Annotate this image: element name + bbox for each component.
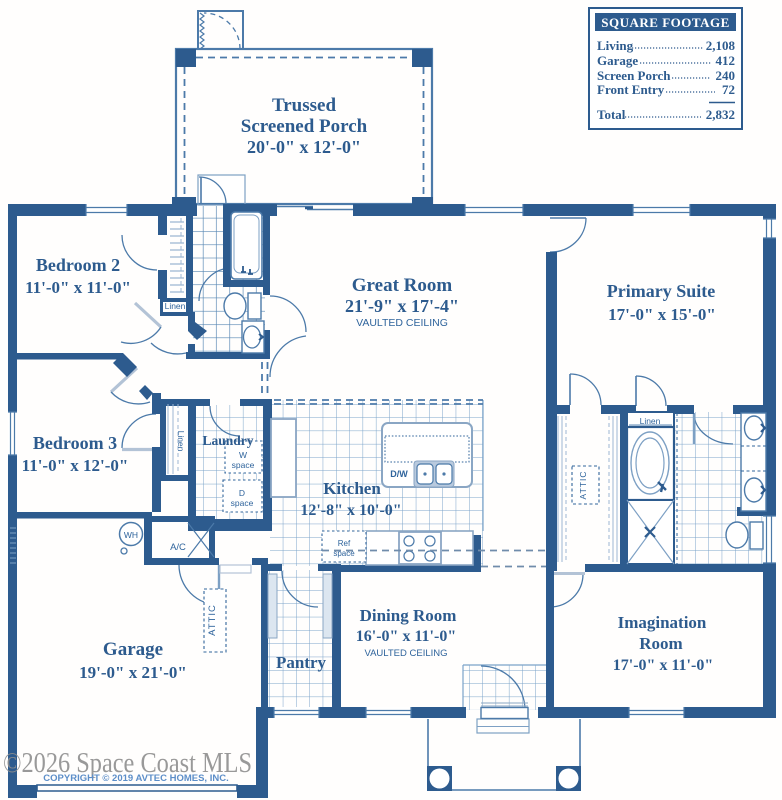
- svg-text:Ref: Ref: [338, 539, 351, 548]
- svg-text:Room: Room: [639, 634, 682, 653]
- svg-text:21'-9" x 17'-4": 21'-9" x 17'-4": [345, 296, 459, 316]
- svg-text:Garage: Garage: [597, 53, 638, 68]
- svg-text:72: 72: [722, 82, 735, 97]
- svg-text:11'-0" x 11'-0": 11'-0" x 11'-0": [25, 278, 131, 297]
- svg-text:ATTIC: ATTIC: [578, 471, 588, 500]
- svg-text:Bedroom 2: Bedroom 2: [36, 255, 120, 275]
- svg-text:space: space: [231, 498, 254, 508]
- svg-text:17'-0" x 15'-0": 17'-0" x 15'-0": [608, 305, 716, 324]
- svg-text:Living: Living: [597, 38, 634, 53]
- svg-text:19'-0" x 21'-0": 19'-0" x 21'-0": [79, 663, 187, 682]
- svg-text:412: 412: [716, 53, 736, 68]
- svg-text:COPYRIGHT © 2019 AVTEC HOMES,: COPYRIGHT © 2019 AVTEC HOMES, INC.: [43, 773, 228, 784]
- svg-text:Screen Porch: Screen Porch: [597, 68, 671, 83]
- svg-text:Dining Room: Dining Room: [360, 606, 457, 625]
- svg-text:20'-0" x 12'-0": 20'-0" x 12'-0": [247, 137, 361, 157]
- svg-text:Great Room: Great Room: [352, 275, 453, 296]
- svg-text:A/C: A/C: [170, 542, 186, 553]
- svg-text:Primary Suite: Primary Suite: [607, 281, 715, 301]
- svg-text:Kitchen: Kitchen: [323, 479, 381, 498]
- svg-text:2,832: 2,832: [706, 107, 735, 122]
- svg-text:Laundry: Laundry: [202, 433, 253, 448]
- svg-text:Trussed: Trussed: [272, 95, 336, 116]
- svg-text:Linen: Linen: [165, 301, 186, 311]
- svg-text:Total: Total: [597, 107, 626, 122]
- svg-text:space: space: [333, 549, 355, 558]
- svg-text:Bedroom 3: Bedroom 3: [33, 433, 117, 453]
- svg-text:W: W: [239, 450, 247, 460]
- svg-text:Pantry: Pantry: [276, 653, 327, 672]
- svg-text:WH: WH: [124, 530, 138, 540]
- svg-text:11'-0" x 12'-0": 11'-0" x 12'-0": [22, 456, 129, 475]
- svg-text:Linen: Linen: [640, 416, 661, 426]
- svg-text:VAULTED CEILING: VAULTED CEILING: [364, 648, 447, 659]
- svg-text:D/W: D/W: [390, 469, 408, 479]
- svg-text:Imagination: Imagination: [618, 613, 707, 632]
- svg-text:17'-0" x 11'-0": 17'-0" x 11'-0": [613, 657, 713, 674]
- svg-text:ATTIC: ATTIC: [207, 604, 218, 636]
- svg-text:240: 240: [716, 68, 736, 83]
- svg-text:Front Entry: Front Entry: [597, 82, 665, 97]
- svg-text:VAULTED CEILING: VAULTED CEILING: [356, 317, 448, 329]
- svg-text:Linen: Linen: [176, 431, 186, 452]
- svg-text:2,108: 2,108: [706, 38, 736, 53]
- svg-text:16'-0" x 11'-0": 16'-0" x 11'-0": [356, 628, 456, 645]
- svg-text:Garage: Garage: [103, 639, 163, 660]
- svg-text:space: space: [232, 460, 255, 470]
- svg-text:D: D: [239, 488, 245, 498]
- svg-text:12'-8" x 10'-0": 12'-8" x 10'-0": [300, 502, 401, 519]
- svg-text:Screened Porch: Screened Porch: [241, 116, 368, 137]
- svg-text:SQUARE FOOTAGE: SQUARE FOOTAGE: [601, 15, 729, 30]
